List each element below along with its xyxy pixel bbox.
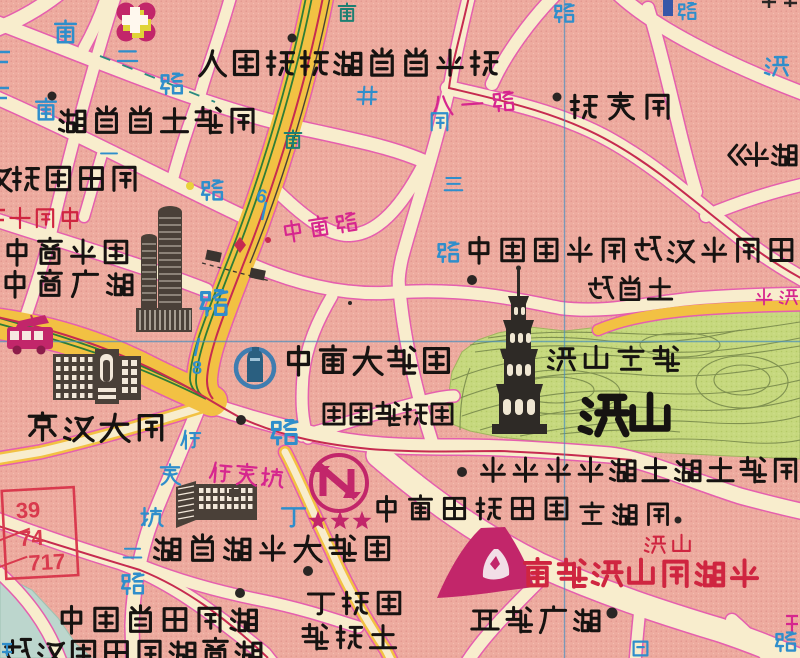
svg-text:74: 74 xyxy=(19,525,46,551)
svg-text:8: 8 xyxy=(192,358,202,378)
svg-text:39: 39 xyxy=(15,497,41,523)
svg-text:717: 717 xyxy=(28,549,66,576)
